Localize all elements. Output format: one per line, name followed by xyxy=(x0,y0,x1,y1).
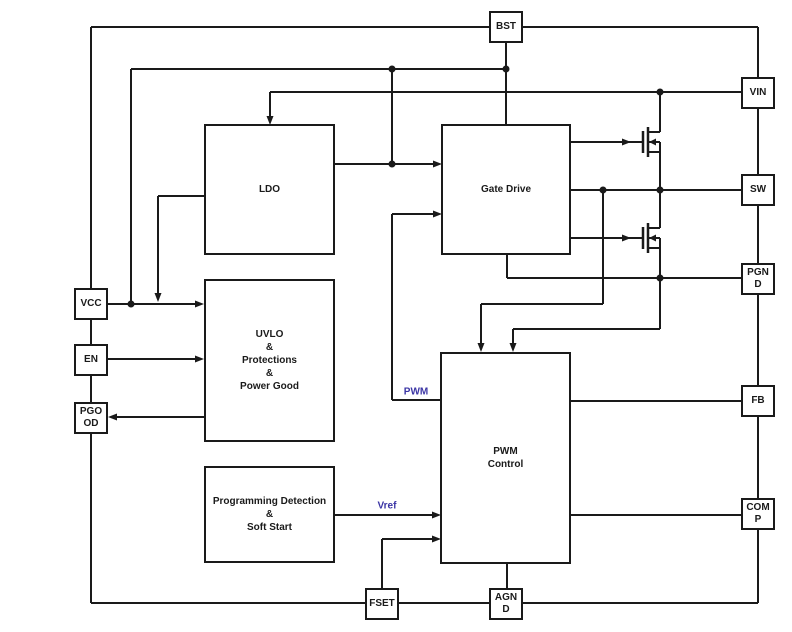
pin-fset: FSET xyxy=(365,588,399,620)
mosfet-high-side-icon xyxy=(643,127,660,157)
pin-label: VCC xyxy=(80,298,101,310)
block-programming-detection-soft-start: Programming Detection & Soft Start xyxy=(204,466,335,563)
pin-label: VIN xyxy=(750,87,767,99)
pin-label-line: AGN xyxy=(495,592,517,604)
pin-label-line: OD xyxy=(84,418,99,430)
pin-en: EN xyxy=(74,344,108,376)
block-pwm-control: PWM Control xyxy=(440,352,571,564)
pin-fb: FB xyxy=(741,385,775,417)
wiring-svg xyxy=(0,0,792,632)
signal-label-vref: Vref xyxy=(378,501,397,512)
pin-label: SW xyxy=(750,184,766,196)
pin-bst: BST xyxy=(489,11,523,43)
block-label-line: Protections xyxy=(242,354,297,367)
pin-label-line: COM xyxy=(746,502,769,514)
pin-pgnd: PGN D xyxy=(741,263,775,295)
pin-label: FSET xyxy=(369,598,395,610)
outer-border xyxy=(91,27,758,603)
pin-label-line: D xyxy=(502,604,509,616)
signal-label-pwm: PWM xyxy=(404,387,428,398)
pin-label-line: D xyxy=(754,279,761,291)
pin-label: FB xyxy=(751,395,764,407)
pin-label-line: PGO xyxy=(80,406,102,418)
pin-label-line: PGN xyxy=(747,267,769,279)
pin-vcc: VCC xyxy=(74,288,108,320)
block-label-line: PWM xyxy=(493,445,517,458)
block-label-line: & xyxy=(266,341,273,354)
pin-sw: SW xyxy=(741,174,775,206)
pin-vin: VIN xyxy=(741,77,775,109)
block-label: LDO xyxy=(259,183,280,196)
mosfet-low-side-icon xyxy=(643,223,660,253)
block-label-line: Control xyxy=(488,458,524,471)
pin-label-line: P xyxy=(755,514,762,526)
pin-label: EN xyxy=(84,354,98,366)
block-label-line: & xyxy=(266,367,273,380)
block-ldo: LDO xyxy=(204,124,335,255)
pin-pgood: PGO OD xyxy=(74,402,108,434)
block-diagram: LDO Gate Drive UVLO & Protections & Powe… xyxy=(0,0,792,632)
block-label-line: & xyxy=(266,508,273,521)
block-label: Gate Drive xyxy=(481,183,531,196)
pin-comp: COM P xyxy=(741,498,775,530)
block-label-line: Power Good xyxy=(240,380,299,393)
pin-label: BST xyxy=(496,21,516,33)
block-gate-drive: Gate Drive xyxy=(441,124,571,255)
block-uvlo-protections-power-good: UVLO & Protections & Power Good xyxy=(204,279,335,442)
block-label-line: Programming Detection xyxy=(213,495,326,508)
wires xyxy=(108,43,741,588)
block-label-line: Soft Start xyxy=(247,521,292,534)
pin-agnd: AGN D xyxy=(489,588,523,620)
block-label-line: UVLO xyxy=(256,328,284,341)
